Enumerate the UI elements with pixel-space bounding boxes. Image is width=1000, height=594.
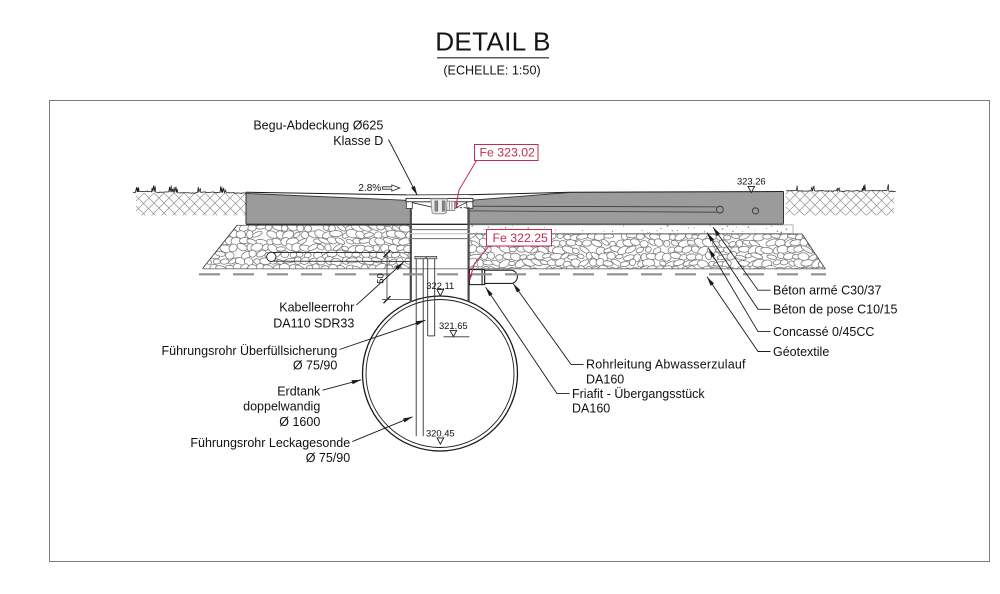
svg-text:Fe 322.25: Fe 322.25 (493, 231, 549, 245)
svg-text:Führungsrohr Leckagesonde: Führungsrohr Leckagesonde (190, 436, 350, 450)
svg-text:DA110 SDR33: DA110 SDR33 (273, 316, 354, 330)
svg-text:Erdtank: Erdtank (277, 384, 321, 398)
svg-text:Kabelleerrohr: Kabelleerrohr (279, 300, 354, 314)
svg-text:Klasse D: Klasse D (333, 134, 383, 148)
svg-text:Béton armé C30/37: Béton armé C30/37 (773, 283, 881, 297)
svg-text:320.45: 320.45 (426, 428, 455, 439)
svg-text:Fe 323.02: Fe 323.02 (480, 145, 536, 159)
svg-text:Ø 1600: Ø 1600 (279, 415, 320, 429)
svg-text:50: 50 (375, 273, 386, 283)
svg-text:323.26: 323.26 (737, 175, 766, 186)
svg-text:Ø 75/90: Ø 75/90 (293, 358, 338, 372)
svg-text:Ø 75/90: Ø 75/90 (306, 451, 351, 465)
svg-text:doppelwandig: doppelwandig (243, 400, 320, 414)
svg-text:Géotextile: Géotextile (773, 345, 829, 359)
svg-text:DA160: DA160 (572, 402, 610, 416)
svg-text:Béton de pose C10/15: Béton de pose C10/15 (773, 303, 897, 317)
svg-text:DETAIL B: DETAIL B (435, 27, 551, 57)
svg-text:DA160: DA160 (586, 372, 624, 386)
svg-text:321.65: 321.65 (439, 320, 468, 331)
svg-text:Begu-Abdeckung Ø625: Begu-Abdeckung Ø625 (253, 118, 383, 132)
svg-text:Rohrleitung Abwasserzulauf: Rohrleitung Abwasserzulauf (586, 358, 746, 372)
svg-text:2.8%: 2.8% (358, 183, 381, 194)
svg-text:Concassé 0/45CC: Concassé 0/45CC (773, 325, 874, 339)
svg-text:Friafit - Übergangsstück: Friafit - Übergangsstück (572, 387, 705, 401)
svg-text:Führungsrohr Überfüllsicherung: Führungsrohr Überfüllsicherung (162, 344, 338, 358)
svg-text:(ECHELLE: 1:50): (ECHELLE: 1:50) (443, 64, 540, 78)
